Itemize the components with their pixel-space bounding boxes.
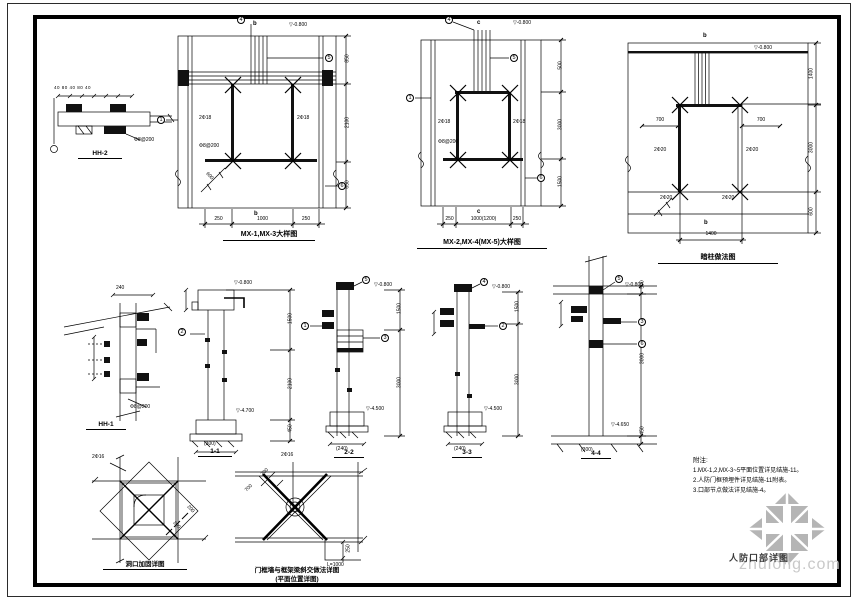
- note-item: 1.MX-1,2,MX-3~5平面位置详见结施-11。: [693, 466, 853, 476]
- sheet-title: 人防口部详图: [729, 551, 789, 564]
- ref-bubble: 5: [362, 276, 370, 284]
- detail-caption: HH-1: [86, 421, 126, 430]
- dim-label: 600: [810, 198, 815, 226]
- dim-label: 850: [346, 46, 351, 72]
- dim-label: 450: [641, 419, 646, 443]
- detail-caption: MX-1,MX-3大样图: [223, 229, 315, 241]
- detail-caption: 洞口加固详图: [103, 558, 187, 570]
- section-caption: 3-3: [452, 449, 482, 458]
- rebar-label: 2Φ18: [513, 120, 525, 125]
- section-caption: 4-4: [581, 450, 611, 459]
- detail-mx1-mx3: b 4 ▽-0.800 5 1 6 2Φ18 2Φ18 Φ8@200 600 2…: [175, 28, 355, 246]
- dim-label: 1500: [516, 295, 521, 319]
- dim-label: 3000: [398, 371, 403, 395]
- dim-label: 40 80 40 80 40: [54, 86, 91, 91]
- rebar-label: 2Φ16: [92, 455, 104, 460]
- ref-bubble: 4: [480, 278, 488, 286]
- elevation-label: ▽-4.500: [366, 406, 384, 412]
- rebar-label: 2Φ20: [722, 196, 734, 201]
- detail-caption: MX-2,MX-4(MX-5)大样图: [417, 237, 547, 249]
- detail-hh1: 240 Φ8@200 HH-1: [58, 283, 178, 435]
- dim-label: (300): [204, 442, 216, 447]
- rebar-label: 2Φ20: [660, 196, 672, 201]
- ref-bubble: 6: [537, 174, 545, 182]
- ref-bubble: 3: [381, 334, 389, 342]
- elevation-label: ▽-0.800: [289, 22, 307, 28]
- ref-bubble: 5: [325, 54, 333, 62]
- dim-label: 450: [289, 418, 294, 440]
- ref-bubble: 5: [615, 275, 623, 283]
- dim-label: 700: [642, 118, 678, 123]
- axis-label: b: [703, 33, 707, 39]
- elevation-label: ▽-4.650: [611, 422, 629, 428]
- detail-caption: 暗柱做法图: [658, 252, 778, 264]
- detail-mx2-mx4: 4 c ▽-0.800 5 1 6 2Φ18 2Φ18 Φ8@200 250 1…: [415, 28, 575, 250]
- ref-bubble: 1: [406, 94, 414, 102]
- rebar-label: Φ8@200: [438, 140, 458, 145]
- dim-label: 250: [511, 217, 523, 222]
- notes-title: 附注:: [693, 455, 853, 466]
- elevation-label: ▽-0.800: [374, 282, 392, 288]
- dim-label: 1400: [810, 60, 815, 88]
- dim-label: 1000: [232, 217, 293, 222]
- dim-label: 1500: [559, 169, 564, 195]
- rebar-label: Φ8@200: [130, 405, 150, 410]
- rebar-label: 2Φ18: [199, 116, 211, 121]
- axis-label: b: [704, 220, 708, 226]
- rebar-label: 2Φ16: [281, 453, 293, 458]
- dim-label: 3000: [559, 112, 564, 138]
- dim-label: 1000(1200): [456, 217, 511, 222]
- ref-bubble: 2: [499, 322, 507, 330]
- section-2-2-linework: [308, 276, 422, 458]
- rebar-label: 2Φ20: [654, 148, 666, 153]
- ref-bubble: 4: [237, 16, 245, 24]
- dim-label: 500: [559, 53, 564, 79]
- ref-bubble: 1: [157, 116, 165, 124]
- dim-label: 3000: [516, 368, 521, 392]
- detail-section-2-2: 5 ▽-0.800 1 3 1500 3000 ▽-4.500 (240) 2-…: [308, 276, 422, 458]
- ref-bubble: 2: [178, 328, 186, 336]
- elevation-label: ▽-4.700: [236, 408, 254, 414]
- axis-label: c: [477, 209, 480, 215]
- ref-bubble: 4: [445, 16, 453, 24]
- axis-label: c: [477, 20, 480, 26]
- dim-label: 240: [116, 286, 124, 291]
- rebar-label: Φ8@200: [199, 144, 219, 149]
- note-item: 2.人防门框预埋件详见结施-11附表。: [693, 476, 853, 486]
- elevation-label: ▽-0.800: [513, 20, 531, 26]
- elevation-label: ▽-0.800: [492, 284, 510, 290]
- detail-caption: HH-2: [78, 150, 122, 159]
- ref-bubble: 3: [638, 318, 646, 326]
- dim-label: 1500: [398, 297, 403, 321]
- dim-label: 2100: [289, 373, 294, 395]
- section-3-3-linework: [428, 276, 540, 458]
- dim-label: 2100: [346, 110, 351, 136]
- elevation-label: ▽-4.500: [484, 406, 502, 412]
- dim-label: 3000: [810, 134, 815, 162]
- detail-plan1: 2Φ16 200 200 洞口加固详图: [90, 453, 210, 571]
- detail-caption-sub: (平面位置详图): [257, 573, 337, 585]
- dim-label: 1400: [680, 232, 742, 237]
- dim-label: 250: [293, 217, 319, 222]
- detail-anzhu: b ▽-0.800 700 700 2Φ20 2Φ20 2Φ20 2Φ20 14…: [618, 30, 823, 265]
- dim-label: 500: [641, 273, 646, 297]
- detail-hh2: 40 80 40 80 40 Φ8@200 HH-2: [50, 78, 175, 170]
- dim-label: 250: [205, 217, 232, 222]
- dim-label: 250: [443, 217, 456, 222]
- hh1-linework: [58, 283, 178, 435]
- dim-label: 700: [742, 118, 780, 123]
- elevation-label: ▽-0.800: [754, 45, 772, 51]
- dim-label: 3000: [641, 347, 646, 371]
- anzhu-linework: [618, 30, 823, 265]
- axis-label: b: [253, 21, 257, 27]
- rebar-label: 2Φ20: [746, 148, 758, 153]
- dim-label: 650: [346, 172, 351, 198]
- rebar-label: 2Φ18: [297, 116, 309, 121]
- rebar-label: 2Φ18: [438, 120, 450, 125]
- detail-section-4-4: 5 ▽-0.800 3 6 500 3000 450 ▽-4.650 (300)…: [545, 256, 662, 460]
- ref-bubble: 5: [510, 54, 518, 62]
- detail-section-3-3: 4 ▽-0.800 2 1500 3000 ▽-4.500 (240) 3-3: [428, 276, 540, 458]
- ref-bubble: 1: [301, 322, 309, 330]
- elevation-label: ▽-0.800: [234, 280, 252, 286]
- section-1-1-linework: [178, 276, 305, 458]
- drawing-canvas: 40 80 40 80 40 Φ8@200 HH-2: [0, 0, 857, 604]
- axis-label: b: [254, 211, 258, 217]
- detail-plan2: 2Φ16 700 700 250 L=1000 门框墙与框架梁斜交做法详图 (平…: [225, 452, 370, 587]
- detail-section-1-1: ▽-0.800 2 1500 2100 450 ▽-4.700 (300) 1-…: [178, 276, 305, 458]
- rebar-label: Φ8@200: [134, 138, 154, 143]
- dim-label: 1500: [289, 308, 294, 330]
- dim-label: 250: [347, 544, 352, 552]
